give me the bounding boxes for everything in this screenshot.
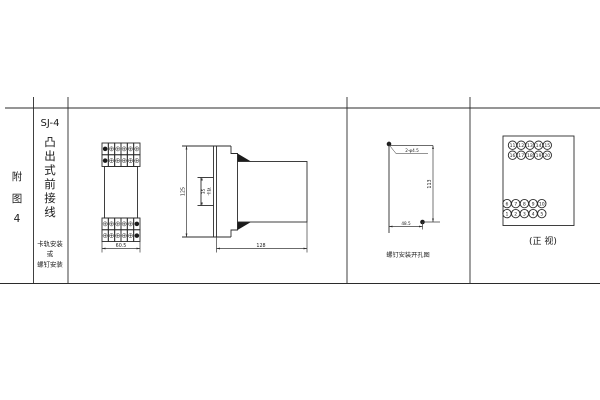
dim-arrow [432, 146, 434, 150]
terminal-number: 3 [523, 211, 526, 217]
front-strip-top [102, 143, 140, 167]
terminal-number: 7 [514, 201, 517, 207]
dim-arrow [432, 219, 434, 223]
holes-label: 2-φ4.5 [405, 148, 419, 153]
dim-arrow [102, 248, 106, 250]
appendix-column: 附 图 4 [12, 170, 23, 225]
case-body [238, 162, 308, 223]
mount-note-line: 螺钉安装 [37, 260, 63, 269]
title-char: 线 [44, 205, 56, 219]
terminal-number: 2 [514, 211, 517, 217]
screw-head-dark [135, 233, 140, 238]
neck-step-top [231, 146, 238, 162]
title-char: 接 [44, 191, 56, 205]
title-char: 式 [44, 163, 56, 177]
terminal-number: 1 [506, 211, 509, 217]
front-width-dim: 60.5 [116, 243, 127, 249]
terminal-circles-top: 11121314151617181920 [508, 141, 551, 159]
screw-head-dark [103, 147, 108, 152]
appendix-char: 图 [12, 193, 23, 205]
title-column: SJ-4 凸 出 式 前 接 线 卡轨安装 或 螺钉安装 [37, 118, 63, 269]
leader-line [390, 146, 396, 154]
horizontal-spacing-dim: 48.5 [401, 221, 411, 226]
terminal-number: 10 [539, 201, 545, 207]
title-char: 前 [44, 177, 56, 191]
dim-arrow [137, 248, 141, 250]
side-depth-dim: 128 [256, 243, 265, 249]
terminal-number: 5 [540, 211, 543, 217]
rail-label: 卡轨 [206, 187, 213, 196]
drawing-canvas: 附 图 4 SJ-4 凸 出 式 前 接 线 卡轨安装 或 螺钉安装 60.5 … [0, 0, 600, 400]
side-height-dim: 125 [180, 187, 186, 196]
terminal-number: 13 [527, 143, 533, 149]
terminal-number: 14 [536, 143, 542, 149]
neck-step-bottom [231, 222, 238, 237]
dim-arrow [217, 248, 221, 250]
model-label: SJ-4 [41, 118, 60, 129]
mount-note-line: 或 [47, 249, 54, 258]
mount-note-line: 卡轨安装 [37, 239, 63, 248]
rail-width-dim: 35 [201, 189, 206, 195]
scanned-drawing-page: 附 图 4 SJ-4 凸 出 式 前 接 线 卡轨安装 或 螺钉安装 60.5 … [0, 0, 600, 400]
screw-head-dark [103, 158, 108, 163]
front-body [105, 167, 138, 219]
drill-view: 2-φ4.5 113 48.5 螺钉安装开孔图 [386, 142, 440, 260]
terminal-caption: (正 视) [529, 235, 557, 247]
dim-arrow [186, 146, 188, 150]
terminal-number: 6 [506, 201, 509, 207]
front-strip-bottom [102, 218, 140, 242]
table-grid [0, 97, 600, 284]
drill-caption: 螺钉安装开孔图 [386, 251, 429, 259]
appendix-char: 4 [14, 213, 21, 225]
dim-arrow [186, 234, 188, 238]
title-char: 出 [44, 149, 56, 163]
terminal-number: 9 [532, 201, 535, 207]
terminal-number: 15 [544, 143, 550, 149]
dim-arrow [419, 226, 423, 228]
dim-arrow [389, 226, 393, 228]
dim-arrow [304, 248, 308, 250]
side-view: 125 35 卡轨 128 [180, 146, 307, 253]
terminal-number: 19 [536, 153, 542, 159]
terminal-number: 8 [523, 201, 526, 207]
terminal-number: 16 [510, 153, 516, 159]
terminal-number: 18 [527, 153, 533, 159]
terminal-number: 4 [532, 211, 535, 217]
vertical-spacing-dim: 113 [427, 179, 433, 188]
terminal-circles-bottom: 67891012345 [503, 199, 546, 217]
terminal-number: 20 [544, 153, 550, 159]
appendix-char: 附 [12, 170, 23, 183]
terminal-number: 11 [510, 143, 516, 149]
terminal-view: 11121314151617181920 67891012345 (正 视) [503, 136, 574, 247]
front-view: 60.5 [102, 143, 140, 253]
terminal-number: 12 [518, 143, 524, 149]
wedge-bottom [238, 222, 252, 230]
terminal-number: 17 [518, 153, 524, 159]
screw-head-dark [135, 222, 140, 227]
wedge-top [238, 154, 252, 162]
title-char: 凸 [44, 135, 56, 149]
